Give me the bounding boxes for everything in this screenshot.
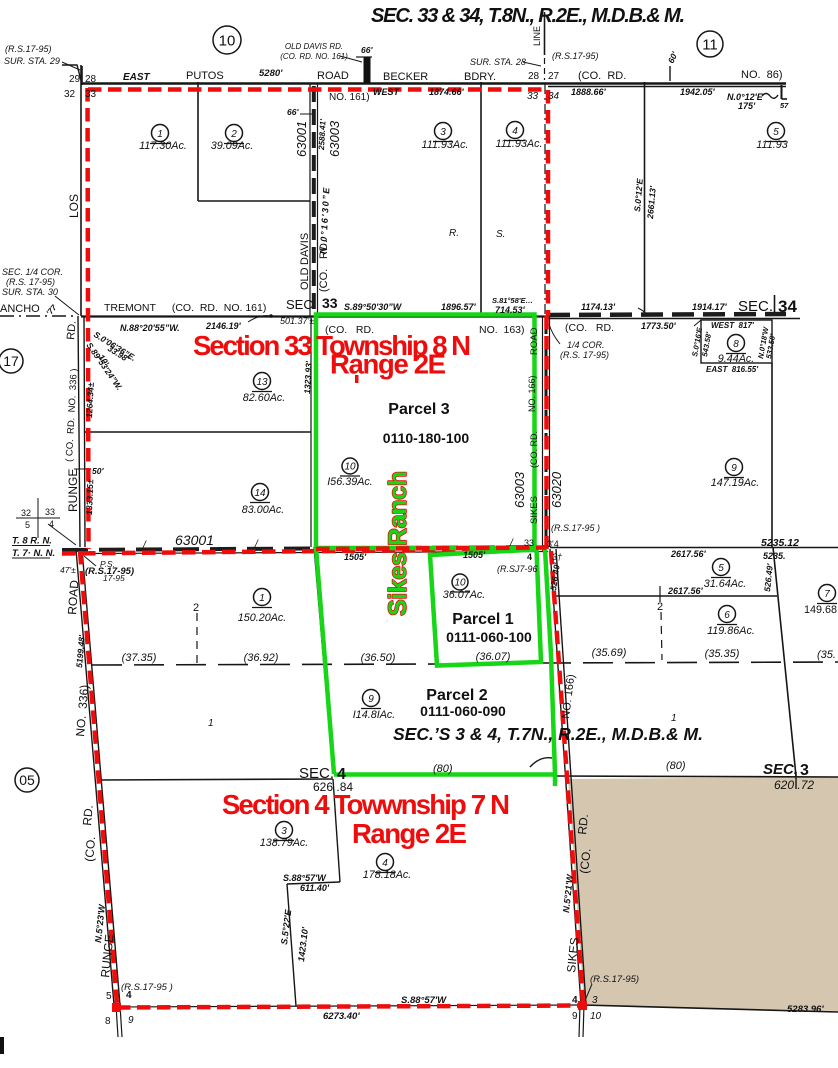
svg-text:S.88°57'W: S.88°57'W bbox=[283, 873, 327, 883]
svg-text:(80): (80) bbox=[666, 760, 686, 772]
svg-text:66': 66' bbox=[361, 45, 373, 55]
svg-text:5: 5 bbox=[718, 563, 724, 574]
svg-text:82.60Ac.: 82.60Ac. bbox=[243, 392, 286, 404]
svg-text:7: 7 bbox=[824, 589, 830, 600]
svg-text:(35.69): (35.69) bbox=[592, 647, 627, 659]
svg-text:2: 2 bbox=[193, 602, 199, 614]
svg-text:RUNGE: RUNGE bbox=[66, 469, 80, 512]
svg-text:175': 175' bbox=[738, 101, 756, 111]
svg-text:2: 2 bbox=[230, 129, 237, 140]
svg-text:50': 50' bbox=[92, 466, 104, 476]
svg-text:2617.56': 2617.56' bbox=[667, 586, 704, 596]
svg-text:17: 17 bbox=[3, 353, 19, 369]
svg-text:OLD DAVIS RD.: OLD DAVIS RD. bbox=[285, 42, 343, 51]
svg-text:39.09Ac.: 39.09Ac. bbox=[211, 140, 254, 152]
svg-text:3: 3 bbox=[440, 127, 446, 138]
svg-text:4: 4 bbox=[527, 552, 532, 562]
svg-text:11: 11 bbox=[702, 36, 718, 53]
svg-text:63003: 63003 bbox=[512, 471, 527, 508]
svg-text:63001: 63001 bbox=[175, 532, 214, 548]
svg-text:RD.: RD. bbox=[318, 240, 330, 259]
svg-text:66': 66' bbox=[287, 107, 299, 117]
svg-text:(CO. RD.: (CO. RD. bbox=[529, 431, 539, 468]
svg-text:3'4: 3'4 bbox=[547, 539, 559, 549]
svg-text:(R.S. 17-95): (R.S. 17-95) bbox=[6, 277, 55, 287]
svg-text:SUR. STA. 29: SUR. STA. 29 bbox=[4, 56, 60, 66]
svg-text:Range 2E: Range 2E bbox=[330, 349, 446, 380]
svg-text:1773.50': 1773.50' bbox=[641, 321, 677, 331]
svg-text:34: 34 bbox=[778, 297, 797, 316]
svg-text:31.64Ac.: 31.64Ac. bbox=[704, 578, 747, 590]
svg-text:(CO. RD.: (CO. RD. bbox=[565, 322, 614, 334]
svg-text:29: 29 bbox=[69, 74, 81, 85]
svg-text:149.68: 149.68 bbox=[804, 604, 837, 616]
svg-text:I14.8IAc.: I14.8IAc. bbox=[353, 709, 396, 721]
svg-text:5235.12: 5235.12 bbox=[761, 537, 799, 549]
svg-text:(36.07): (36.07) bbox=[476, 651, 511, 663]
svg-text:3: 3 bbox=[592, 995, 598, 1006]
svg-text:ROAD: ROAD bbox=[65, 579, 81, 615]
svg-text:NO. 161): NO. 161) bbox=[329, 92, 370, 103]
svg-text:47'±: 47'± bbox=[60, 565, 76, 575]
svg-text:3: 3 bbox=[281, 826, 287, 837]
svg-text:33: 33 bbox=[45, 507, 55, 517]
svg-text:1323.93': 1323.93' bbox=[302, 360, 314, 394]
svg-text:TREMONT: TREMONT bbox=[104, 302, 156, 314]
svg-text:5: 5 bbox=[773, 127, 779, 138]
svg-text:(R.SJ7-96: (R.SJ7-96 bbox=[497, 564, 538, 574]
svg-text:I56.39Ac.: I56.39Ac. bbox=[327, 476, 373, 488]
svg-text:9: 9 bbox=[368, 694, 374, 705]
svg-text:9: 9 bbox=[128, 1015, 134, 1026]
svg-text:Parcel 1: Parcel 1 bbox=[452, 611, 513, 628]
svg-text:9: 9 bbox=[731, 463, 737, 474]
svg-text:33: 33 bbox=[322, 295, 338, 311]
svg-text:1888.66': 1888.66' bbox=[571, 87, 607, 97]
svg-text:N.88°20'55”W.: N.88°20'55”W. bbox=[120, 323, 180, 333]
svg-text:5: 5 bbox=[106, 991, 112, 1002]
svg-text:4: 4 bbox=[49, 519, 54, 529]
svg-text:5283.96': 5283.96' bbox=[787, 1004, 824, 1015]
svg-text:17-95: 17-95 bbox=[103, 573, 125, 583]
svg-text:Range 2E: Range 2E bbox=[352, 818, 467, 849]
svg-text:NO. 163): NO. 163) bbox=[479, 324, 525, 336]
svg-text:ROAD: ROAD bbox=[317, 70, 349, 82]
svg-text:8: 8 bbox=[733, 339, 739, 350]
svg-text:(R.S.17-95 ): (R.S.17-95 ) bbox=[551, 523, 600, 533]
svg-text:33: 33 bbox=[527, 91, 539, 102]
svg-text:1: 1 bbox=[259, 593, 265, 604]
svg-text:SEC. 1/4 COR.: SEC. 1/4 COR. bbox=[2, 267, 63, 277]
svg-text:5: 5 bbox=[25, 520, 30, 530]
svg-text:28: 28 bbox=[528, 71, 540, 82]
svg-text:05: 05 bbox=[19, 772, 35, 788]
svg-text:S.89°50'30”W: S.89°50'30”W bbox=[344, 302, 403, 312]
svg-text:147.19Ac.: 147.19Ac. bbox=[711, 477, 760, 489]
svg-text:10: 10 bbox=[344, 462, 356, 473]
svg-text:1942.05': 1942.05' bbox=[680, 87, 716, 97]
svg-text:RD.: RD. bbox=[80, 804, 96, 826]
svg-text:(CO.: (CO. bbox=[577, 848, 594, 875]
svg-text:4: 4 bbox=[512, 126, 518, 137]
svg-text:6273.40': 6273.40' bbox=[323, 1011, 360, 1022]
svg-text:10: 10 bbox=[590, 1011, 602, 1022]
svg-text:Sikes Ranch: Sikes Ranch bbox=[384, 471, 412, 616]
svg-text:T. 8 R. N.: T. 8 R. N. bbox=[12, 536, 52, 547]
svg-text:83.00Ac.: 83.00Ac. bbox=[242, 504, 285, 516]
svg-text:5280': 5280' bbox=[259, 68, 283, 79]
svg-text:(CO.: (CO. bbox=[82, 836, 98, 862]
svg-text:SEC.: SEC. bbox=[286, 297, 316, 312]
svg-text:9.44Ac.: 9.44Ac. bbox=[718, 353, 755, 365]
svg-text:111.93Ac.: 111.93Ac. bbox=[421, 139, 468, 151]
svg-text:111.93Ac.: 111.93Ac. bbox=[495, 138, 542, 150]
svg-text:501.37'±: 501.37'± bbox=[280, 316, 314, 326]
svg-text:DAVIS: DAVIS bbox=[299, 233, 311, 265]
svg-text:63001: 63001 bbox=[294, 121, 309, 157]
svg-text:1505': 1505' bbox=[463, 550, 486, 560]
svg-text:4: 4 bbox=[382, 858, 388, 869]
svg-text:BECKER: BECKER bbox=[383, 71, 428, 83]
svg-text:PUTOS: PUTOS bbox=[186, 70, 224, 82]
svg-text:36.07Ac.: 36.07Ac. bbox=[443, 589, 486, 601]
svg-text:(35.35): (35.35) bbox=[705, 648, 740, 660]
svg-text:111.93: 111.93 bbox=[756, 139, 787, 151]
svg-text:(CO. RD. NO. 161): (CO. RD. NO. 161) bbox=[166, 302, 266, 314]
svg-text:(CO. RD.: (CO. RD. bbox=[578, 70, 626, 82]
svg-text:(CO.: (CO. bbox=[318, 269, 330, 292]
svg-text:1896.57': 1896.57' bbox=[441, 302, 477, 312]
svg-text:ROAD: ROAD bbox=[529, 327, 540, 355]
svg-text:8: 8 bbox=[105, 1016, 111, 1027]
svg-text:R.: R. bbox=[449, 228, 459, 239]
svg-text:(R.S.17-95): (R.S.17-95) bbox=[590, 974, 639, 985]
svg-text:1: 1 bbox=[671, 713, 677, 724]
svg-text:27: 27 bbox=[548, 71, 560, 82]
svg-text:T. 7· N. N.: T. 7· N. N. bbox=[12, 548, 55, 559]
svg-text:9: 9 bbox=[572, 1011, 578, 1022]
svg-text:2588.41': 2588.41' bbox=[317, 118, 328, 151]
svg-text:63020: 63020 bbox=[549, 471, 564, 508]
svg-text:14: 14 bbox=[254, 488, 266, 499]
svg-text:(80): (80) bbox=[433, 763, 453, 775]
svg-text:4: 4 bbox=[126, 990, 132, 1001]
svg-text:119.86Ac.: 119.86Ac. bbox=[707, 625, 755, 637]
svg-text:4: 4 bbox=[572, 995, 578, 1006]
svg-text:OLD: OLD bbox=[299, 267, 311, 290]
svg-text:714.53': 714.53' bbox=[495, 305, 526, 315]
svg-text:1174.13': 1174.13' bbox=[581, 302, 616, 312]
svg-text:S.81°58'E…: S.81°58'E… bbox=[492, 296, 533, 305]
svg-text:2617.56': 2617.56' bbox=[670, 549, 707, 559]
svg-text:3: 3 bbox=[800, 762, 809, 779]
svg-text:Parcel 3: Parcel 3 bbox=[388, 401, 449, 418]
svg-text:3†: 3† bbox=[552, 552, 562, 562]
svg-text:1/4 COR.: 1/4 COR. bbox=[567, 340, 605, 350]
svg-text:EAST: EAST bbox=[123, 72, 151, 83]
svg-text:(R.S.17-95): (R.S.17-95) bbox=[552, 51, 599, 61]
svg-text:S.88°57'W: S.88°57'W bbox=[401, 995, 447, 1006]
svg-text:13: 13 bbox=[256, 377, 268, 388]
svg-text:BDRY.: BDRY. bbox=[464, 71, 496, 83]
svg-text:28: 28 bbox=[85, 74, 97, 85]
svg-text:LINE: LINE bbox=[532, 26, 542, 46]
svg-text:SEC. 33 & 34, T.8N., R.2E., M.: SEC. 33 & 34, T.8N., R.2E., M.D.B.& M. bbox=[371, 5, 685, 27]
svg-text:1333.15±: 1333.15± bbox=[84, 479, 95, 515]
svg-text:0111-060-100: 0111-060-100 bbox=[446, 629, 532, 645]
svg-text:(R.S. 17-95): (R.S. 17-95) bbox=[560, 350, 609, 360]
svg-text:SEC.’S 3 & 4, T.7N., R.2E., M.: SEC.’S 3 & 4, T.7N., R.2E., M.D.B.& M. bbox=[393, 724, 703, 744]
svg-text:10: 10 bbox=[454, 578, 466, 589]
svg-text:NO. 86): NO. 86) bbox=[741, 69, 783, 81]
svg-text:0111-060-090: 0111-060-090 bbox=[420, 703, 506, 719]
svg-text:(37.35): (37.35) bbox=[122, 652, 157, 664]
svg-text:5235.: 5235. bbox=[763, 551, 786, 561]
svg-text:WEST 817': WEST 817' bbox=[711, 321, 755, 330]
svg-text:(36.50): (36.50) bbox=[361, 652, 396, 664]
svg-text:0110-180-100: 0110-180-100 bbox=[383, 430, 470, 446]
svg-text:33: 33 bbox=[85, 89, 97, 100]
svg-text:1: 1 bbox=[157, 129, 163, 140]
svg-text:EAST 816.55': EAST 816.55' bbox=[706, 365, 759, 374]
svg-text:32: 32 bbox=[21, 508, 31, 518]
svg-text:Parcel 2: Parcel 2 bbox=[426, 687, 487, 704]
svg-text:57: 57 bbox=[780, 101, 789, 110]
svg-text:WEST: WEST bbox=[373, 87, 401, 97]
svg-text:138.79Ac.: 138.79Ac. bbox=[260, 837, 309, 849]
svg-text:(R.S.17-95): (R.S.17-95) bbox=[5, 44, 52, 54]
svg-text:33: 33 bbox=[524, 538, 534, 548]
svg-text:2: 2 bbox=[657, 601, 663, 613]
svg-text:SUR. STA. 30: SUR. STA. 30 bbox=[2, 287, 58, 297]
svg-text:1: 1 bbox=[208, 718, 214, 729]
svg-text:6: 6 bbox=[724, 610, 730, 621]
svg-text:RD.: RD. bbox=[65, 320, 79, 340]
svg-text:150.20Ac.: 150.20Ac. bbox=[238, 612, 287, 624]
svg-text:(36.92): (36.92) bbox=[244, 652, 279, 664]
svg-text:620 .72: 620 .72 bbox=[774, 778, 814, 792]
svg-text:1505': 1505' bbox=[344, 552, 367, 562]
svg-text:1264.34±: 1264.34± bbox=[84, 382, 96, 418]
svg-text:1874.66': 1874.66' bbox=[429, 87, 465, 97]
svg-text:34: 34 bbox=[548, 91, 560, 102]
svg-text:178.18Ac.: 178.18Ac. bbox=[363, 869, 412, 881]
svg-text:SEC.: SEC. bbox=[763, 761, 798, 778]
svg-text:10: 10 bbox=[219, 32, 236, 49]
svg-text:(35.: (35. bbox=[817, 649, 836, 661]
svg-text:32: 32 bbox=[64, 89, 76, 100]
svg-text:611.40': 611.40' bbox=[300, 883, 330, 893]
svg-text:SEC.: SEC. bbox=[738, 298, 773, 315]
svg-text:1914.17': 1914.17' bbox=[692, 302, 728, 312]
svg-text:ANCHO: ANCHO bbox=[0, 303, 40, 315]
svg-text:RD.: RD. bbox=[575, 813, 591, 835]
svg-text:NO. 166): NO. 166) bbox=[527, 375, 537, 412]
svg-text:Section 4 Towwnship 7 N: Section 4 Towwnship 7 N bbox=[222, 789, 510, 820]
svg-text:63003: 63003 bbox=[327, 120, 342, 157]
svg-text:(CO. RD. NO. 161): (CO. RD. NO. 161) bbox=[280, 52, 348, 61]
svg-text:SIKES: SIKES bbox=[529, 496, 540, 524]
svg-text:SUR. STA. 28: SUR. STA. 28 bbox=[470, 57, 526, 67]
svg-text:LOS: LOS bbox=[67, 194, 81, 218]
svg-text:117.30Ac.: 117.30Ac. bbox=[139, 140, 187, 152]
svg-text:S.: S. bbox=[496, 229, 505, 240]
